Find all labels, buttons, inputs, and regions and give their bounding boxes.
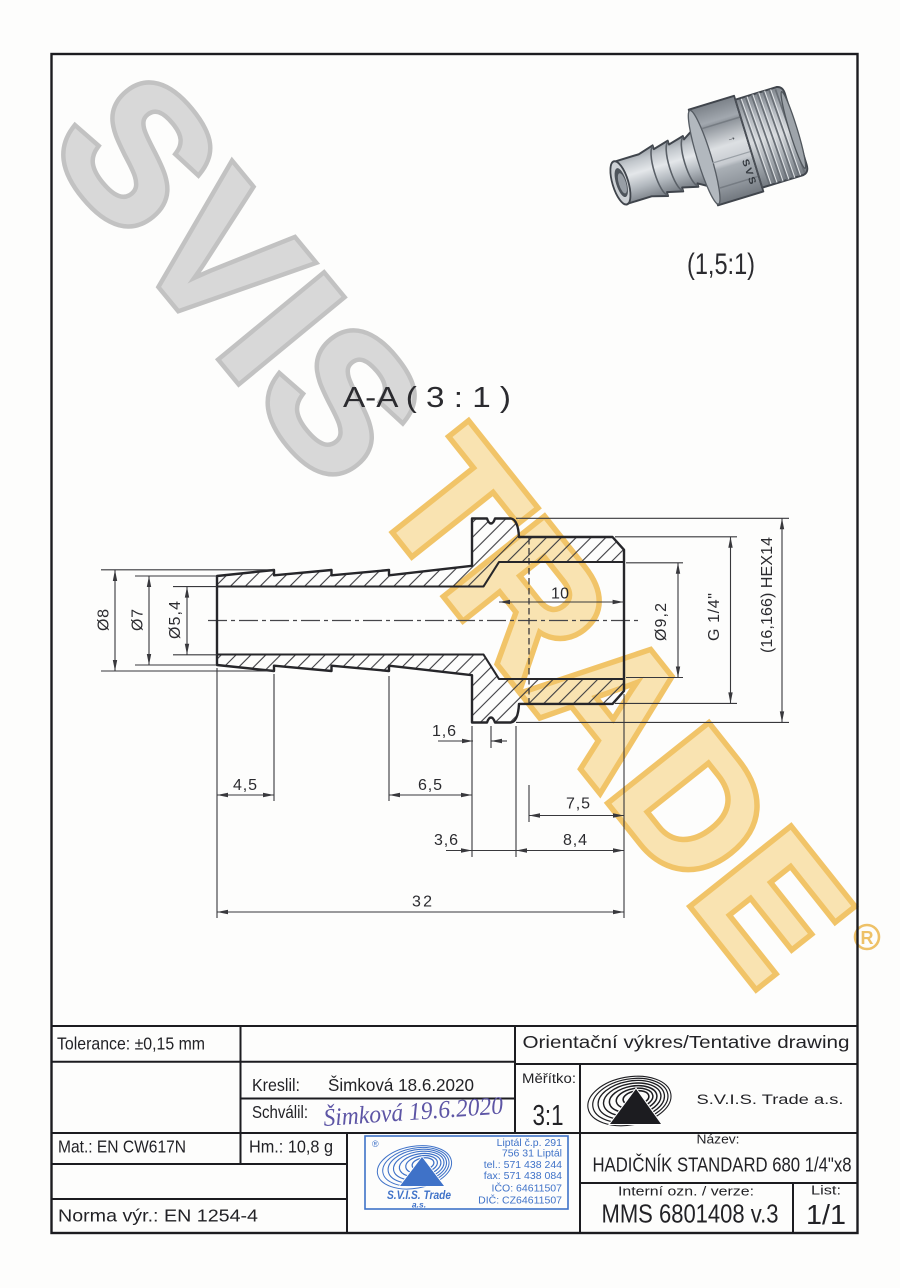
svg-text:A-A ( 3 : 1 ): A-A ( 3 : 1 ) <box>343 382 511 414</box>
svg-text:SVIS: SVIS <box>13 35 468 522</box>
svg-text:MMS 6801408 v.3: MMS 6801408 v.3 <box>602 1199 779 1229</box>
svg-text:10: 10 <box>551 586 569 603</box>
svg-text:IČO: 64611507: IČO: 64611507 <box>492 1182 563 1195</box>
svg-text:Orientační výkres/Tentative dr: Orientační výkres/Tentative drawing <box>523 1032 850 1052</box>
svg-text:Název:: Název: <box>697 1133 740 1147</box>
svg-text:(1,5:1): (1,5:1) <box>687 248 755 281</box>
svg-text:1/1: 1/1 <box>806 1199 846 1230</box>
svg-text:Ø7: Ø7 <box>130 609 147 631</box>
svg-text:1,6: 1,6 <box>432 723 456 740</box>
svg-text:List:: List: <box>811 1184 841 1198</box>
svg-text:756 31 Liptál: 756 31 Liptál <box>502 1148 562 1160</box>
svg-text:Hm.: 10,8 g: Hm.: 10,8 g <box>249 1137 333 1157</box>
svg-text:Tolerance: ±0,15 mm: Tolerance: ±0,15 mm <box>57 1034 205 1054</box>
svg-text:Schválil:: Schválil: <box>252 1102 308 1122</box>
svg-text:HADIČNÍK STANDARD 680 1/4"x8: HADIČNÍK STANDARD 680 1/4"x8 <box>593 1154 852 1177</box>
svg-text:Norma výr.: EN 1254-4: Norma výr.: EN 1254-4 <box>58 1206 258 1226</box>
svg-text:R: R <box>861 928 874 948</box>
svg-text:TRADE: TRADE <box>339 399 888 1017</box>
svg-text:Ø9,2: Ø9,2 <box>653 603 670 641</box>
svg-text:7,5: 7,5 <box>566 796 590 813</box>
svg-text:S.V.I.S. Trade a.s.: S.V.I.S. Trade a.s. <box>697 1092 844 1107</box>
svg-text:4,5: 4,5 <box>233 777 257 794</box>
svg-text:a.s.: a.s. <box>412 1200 426 1210</box>
svg-text:3,6: 3,6 <box>434 832 458 849</box>
svg-text:G 1/4": G 1/4" <box>706 593 723 641</box>
svg-text:3:1: 3:1 <box>533 1100 564 1132</box>
svg-text:Měřítko:: Měřítko: <box>522 1071 576 1086</box>
svg-text:Mat.: EN CW617N: Mat.: EN CW617N <box>58 1137 186 1157</box>
svg-text:6,5: 6,5 <box>418 777 442 794</box>
svg-text:(16,166) HEX14: (16,166) HEX14 <box>759 537 776 653</box>
svg-text:32: 32 <box>412 894 432 911</box>
svg-text:DIČ: CZ64611507: DIČ: CZ64611507 <box>478 1194 562 1207</box>
svg-text:fax: 571 438 084: fax: 571 438 084 <box>484 1170 562 1182</box>
svg-text:Kreslil:: Kreslil: <box>252 1075 300 1095</box>
svg-text:8,4: 8,4 <box>563 832 587 849</box>
svg-text:Ø5,4: Ø5,4 <box>167 601 184 639</box>
svg-text:Ø8: Ø8 <box>96 609 113 631</box>
svg-text:®: ® <box>372 1139 379 1149</box>
svg-text:Šimková 18.6.2020: Šimková 18.6.2020 <box>328 1074 474 1095</box>
svg-text:Interní ozn. / verze:: Interní ozn. / verze: <box>618 1185 754 1199</box>
